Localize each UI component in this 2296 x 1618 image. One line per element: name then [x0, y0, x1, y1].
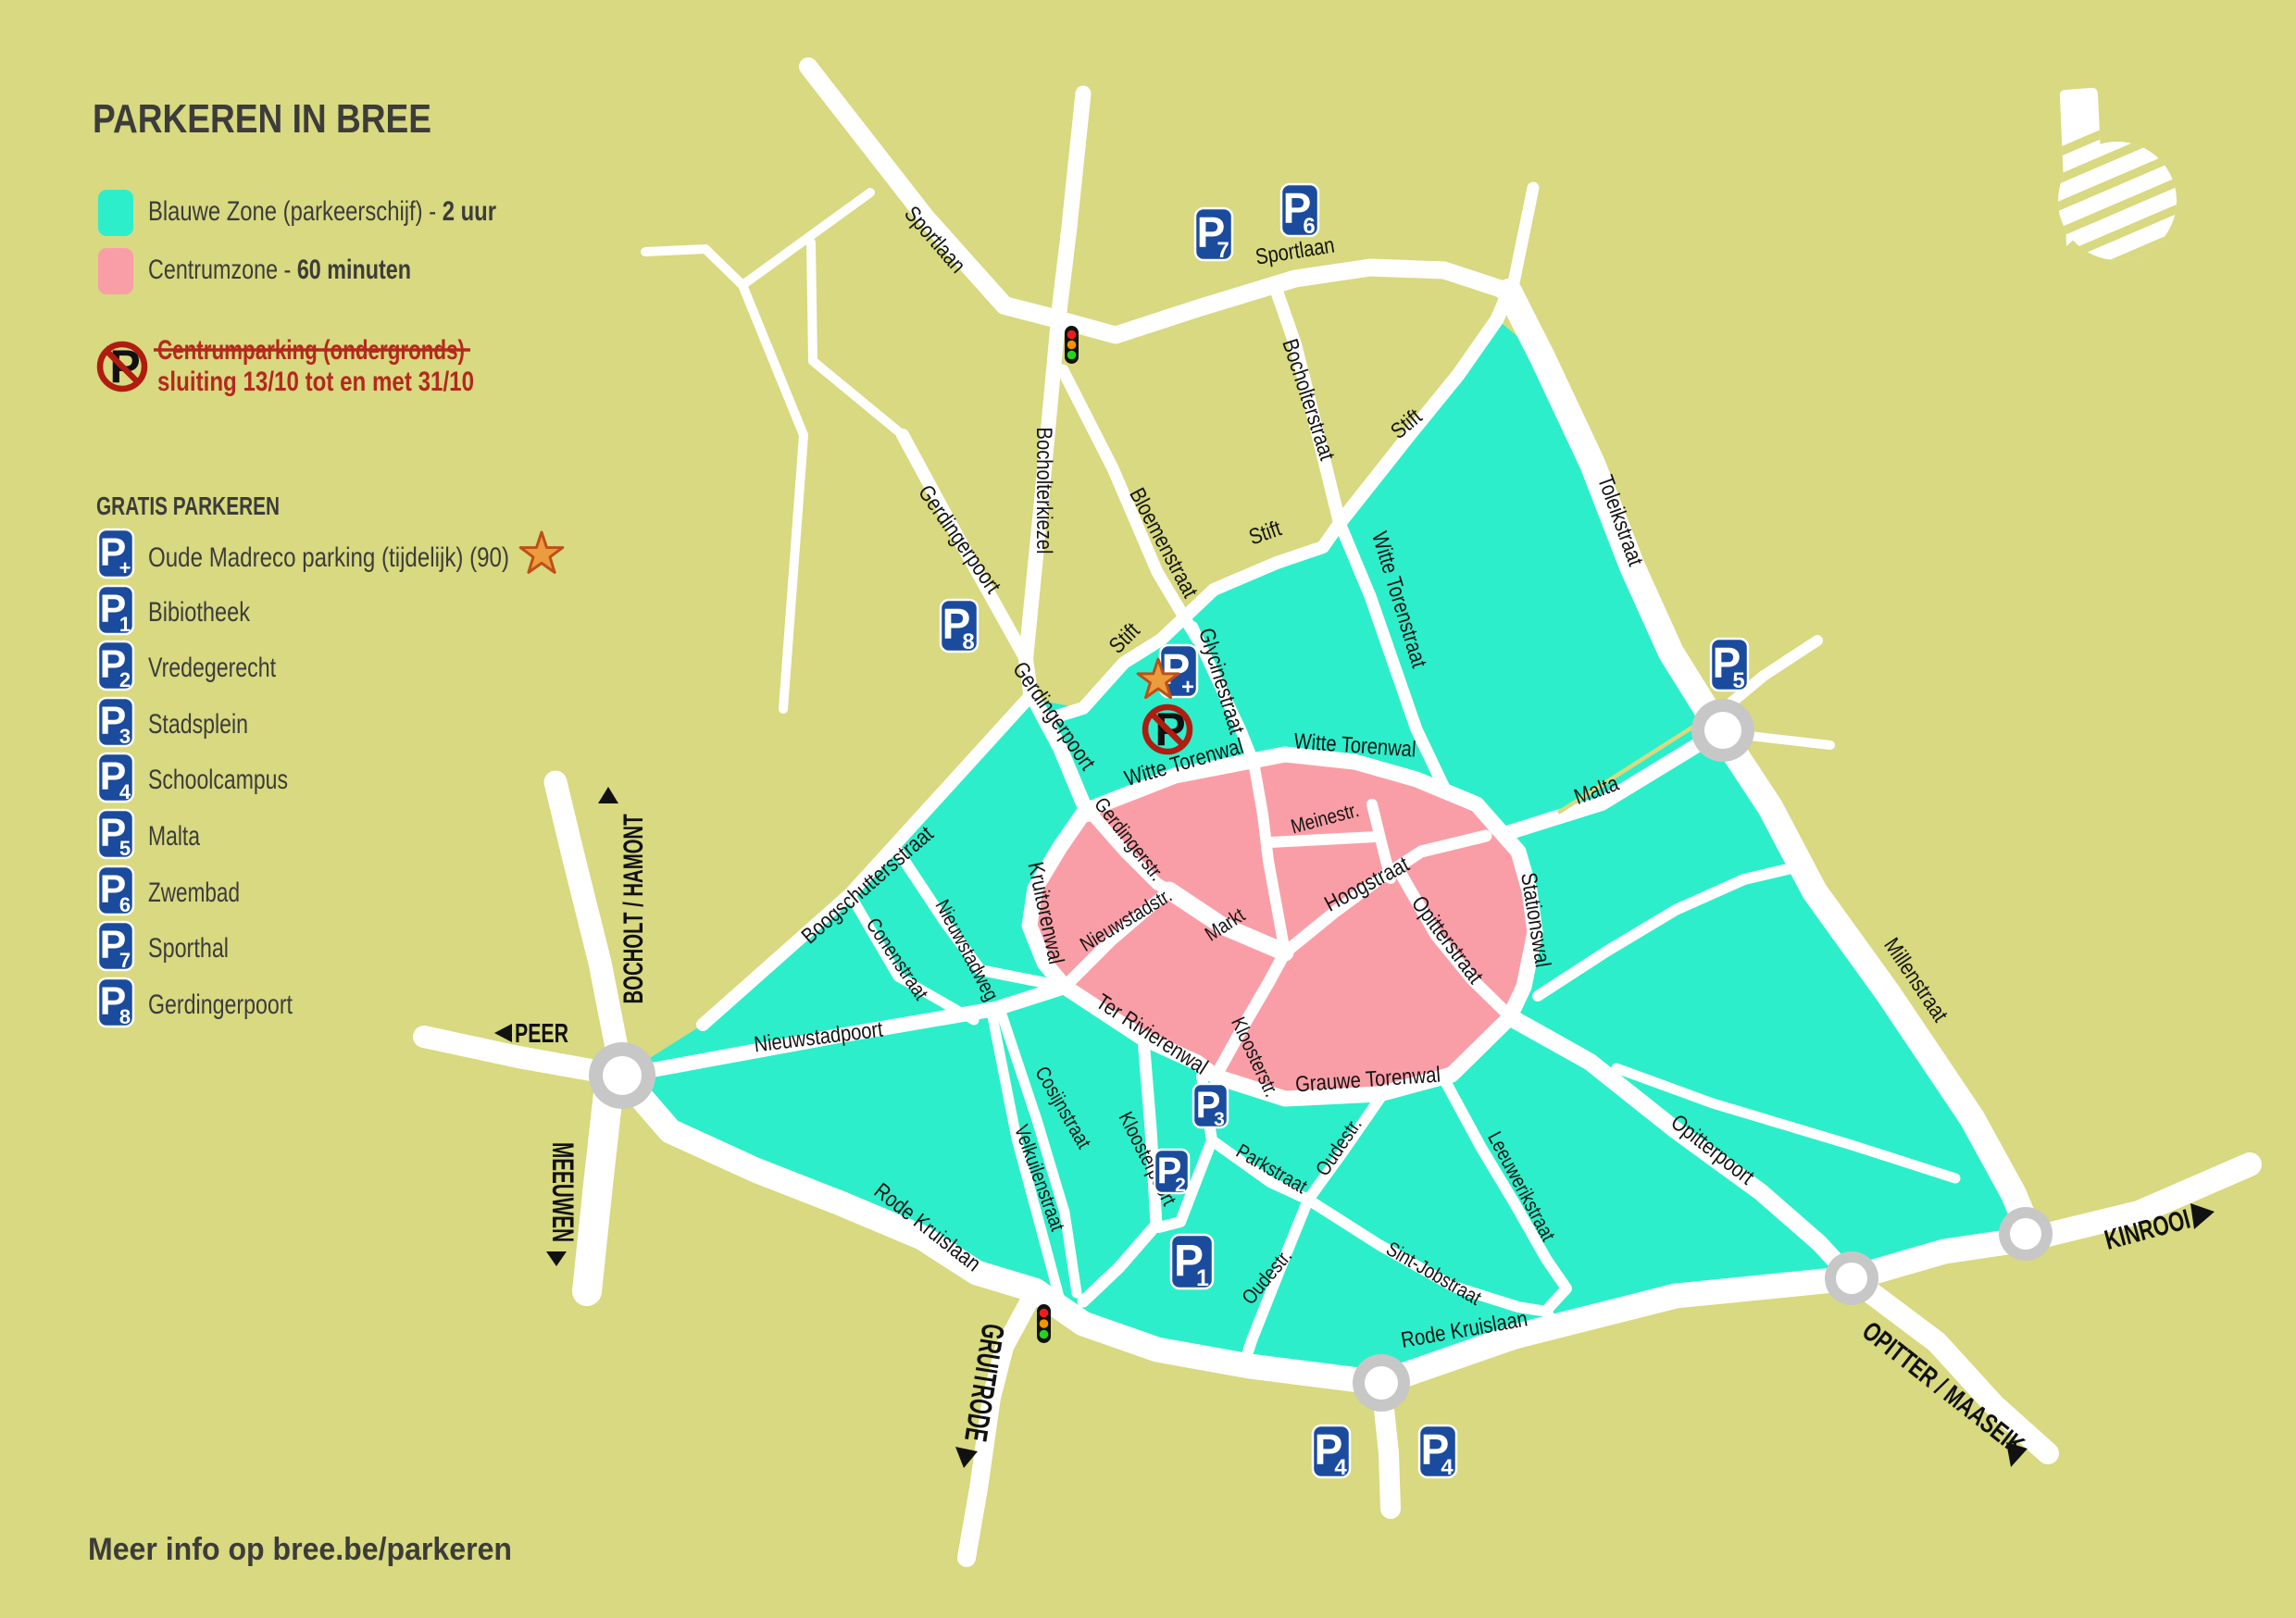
svg-text:8: 8	[119, 1005, 131, 1028]
svg-text:Centrumzone - 60 minuten: Centrumzone - 60 minuten	[148, 255, 411, 285]
svg-text:6: 6	[119, 893, 131, 916]
svg-text:8: 8	[962, 629, 974, 654]
svg-text:Sporthal: Sporthal	[148, 933, 229, 964]
svg-text:1: 1	[1196, 1265, 1209, 1291]
svg-text:GRATIS PARKEREN: GRATIS PARKEREN	[96, 492, 280, 520]
svg-text:4: 4	[1441, 1455, 1454, 1480]
svg-text:3: 3	[1214, 1109, 1225, 1130]
svg-text:Stadsplein: Stadsplein	[148, 709, 248, 740]
svg-text:3: 3	[119, 725, 131, 748]
svg-text:2: 2	[119, 668, 131, 691]
svg-text:Schoolcampus: Schoolcampus	[148, 765, 288, 795]
svg-text:6: 6	[1303, 214, 1315, 239]
svg-text:PARKEREN IN BREE: PARKEREN IN BREE	[93, 96, 431, 142]
svg-text:5: 5	[119, 837, 131, 860]
svg-text:BOCHOLT / HAMONT: BOCHOLT / HAMONT	[618, 815, 649, 1004]
svg-text:Meer info op bree.be/parkeren: Meer info op bree.be/parkeren	[88, 1532, 512, 1567]
svg-text:4: 4	[1334, 1455, 1347, 1480]
svg-text:sluiting 13/10 tot en met 31/1: sluiting 13/10 tot en met 31/10	[157, 367, 474, 397]
svg-text:4: 4	[119, 780, 131, 803]
svg-text:+: +	[119, 556, 131, 579]
svg-text:+: +	[1181, 675, 1194, 700]
svg-text:7: 7	[119, 949, 131, 972]
svg-text:Malta: Malta	[148, 821, 200, 852]
svg-text:Vredegerecht: Vredegerecht	[148, 653, 277, 683]
svg-text:5: 5	[1732, 668, 1744, 693]
svg-text:Blauwe Zone (parkeerschijf) -: Blauwe Zone (parkeerschijf) - 2 uur	[148, 196, 496, 227]
svg-text:Gerdingerpoort: Gerdingerpoort	[148, 989, 293, 1020]
svg-text:2: 2	[1175, 1175, 1186, 1196]
svg-text:Zwembad: Zwembad	[148, 877, 240, 908]
svg-text:1: 1	[119, 613, 131, 636]
svg-text:MEEUWEN: MEEUWEN	[546, 1142, 580, 1242]
svg-text:Bocholterkiezel: Bocholterkiezel	[1031, 428, 1056, 554]
svg-text:7: 7	[1217, 238, 1229, 263]
svg-text:Bibiotheek: Bibiotheek	[148, 597, 251, 628]
svg-text:PEER: PEER	[515, 1019, 568, 1049]
svg-text:Oude Madreco parking (tijdelij: Oude Madreco parking (tijdelijk) (90)	[148, 542, 509, 573]
